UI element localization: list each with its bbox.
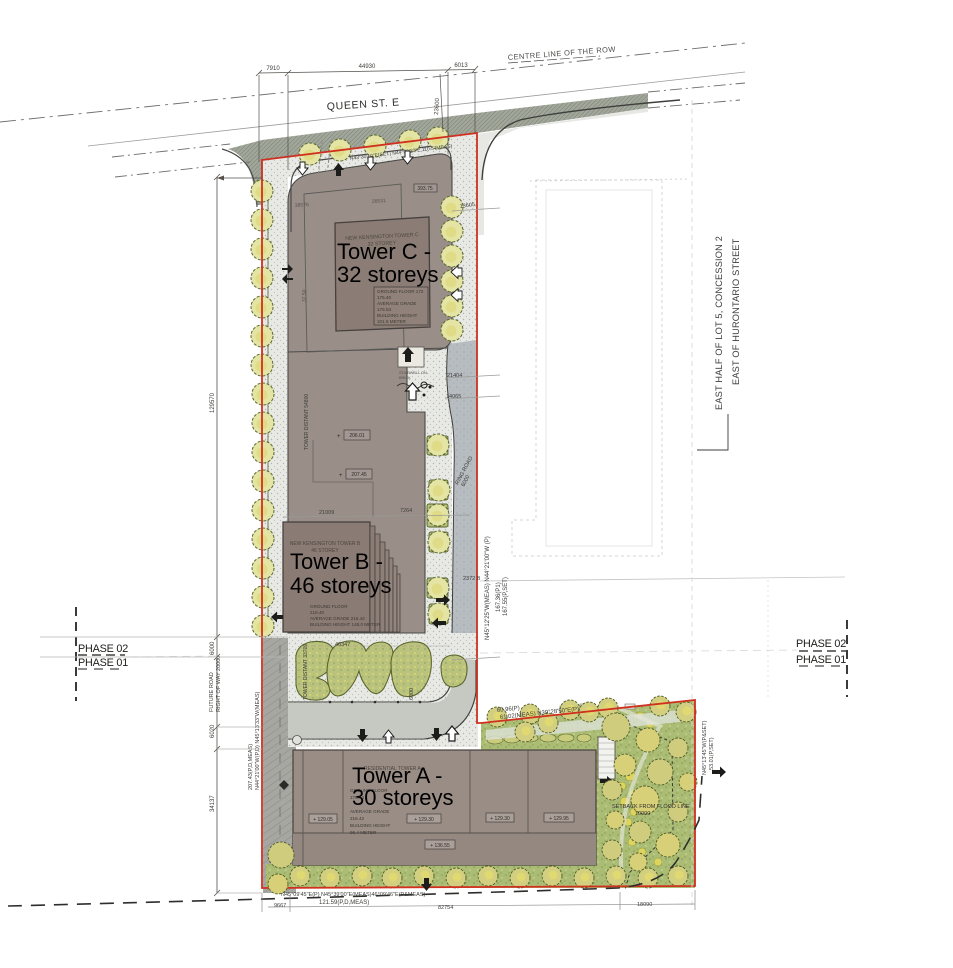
svg-text:Tower B -: Tower B - (290, 549, 383, 574)
svg-text:101.6 METER: 101.6 METER (377, 319, 407, 324)
svg-text:167.36(P1): 167.36(P1) (496, 582, 502, 612)
svg-text:+: + (337, 434, 341, 440)
svg-text:10000: 10000 (635, 811, 650, 817)
svg-text:18090: 18090 (637, 902, 652, 908)
svg-text:121.59(P,D,MEAS): 121.59(P,D,MEAS) (319, 900, 369, 906)
svg-text:175.40: 175.40 (377, 295, 391, 300)
svg-text:216.40: 216.40 (310, 610, 324, 615)
svg-text:207.45: 207.45 (351, 472, 367, 478)
svg-text:6020: 6020 (210, 724, 216, 738)
svg-text:40347: 40347 (335, 642, 350, 648)
svg-text:32 storeys: 32 storeys (337, 262, 439, 287)
svg-text:N45°12'25"W(MEAS) N44°21'00"W: N45°12'25"W(MEAS) N44°21'00"W (P) (485, 536, 491, 640)
svg-text:GROUND FLOOR: GROUND FLOOR (310, 604, 348, 609)
svg-text:BUILDING HEIGHT 148.0 METER: BUILDING HEIGHT 148.0 METER (310, 622, 381, 627)
svg-text:34137: 34137 (210, 795, 216, 812)
svg-text:AVERAGE GRADE: AVERAGE GRADE (377, 301, 416, 306)
svg-text:N45°13'45"W(P&SET): N45°13'45"W(P&SET) (702, 720, 708, 775)
svg-text:44930: 44930 (359, 64, 376, 70)
svg-text:TOWER DISTANT 54800: TOWER DISTANT 54800 (304, 394, 310, 450)
svg-text:NEW KENSINGTON TOWER B: NEW KENSINGTON TOWER B (290, 541, 361, 547)
svg-text:206.01: 206.01 (349, 433, 365, 439)
svg-text:AVERAGE GRADE 216.42: AVERAGE GRADE 216.42 (310, 616, 365, 621)
svg-text:9667: 9667 (274, 903, 286, 909)
svg-text:167.55(P,SET): 167.55(P,SET) (503, 577, 509, 616)
svg-text:96.4 METER: 96.4 METER (350, 830, 377, 835)
svg-text:BUILDING HEIGHT: BUILDING HEIGHT (350, 823, 391, 828)
svg-text:176.53: 176.53 (377, 307, 391, 312)
svg-text:N45°09'45"E(P) N45°39'00"E(MEA: N45°09'45"E(P) N45°39'00"E(MEAS)46°09'46… (281, 892, 425, 898)
svg-text:+ 136.55: + 136.55 (430, 843, 450, 849)
svg-text:TOWER DISTANT 33709: TOWER DISTANT 33709 (303, 644, 309, 700)
svg-text:GROUND FLOOR 172: GROUND FLOOR 172 (377, 289, 424, 294)
svg-text:EAST HALF OF LOT 5, CONCESSION: EAST HALF OF LOT 5, CONCESSION 2 (714, 236, 724, 410)
svg-text:53.01(P,SET): 53.01(P,SET) (709, 737, 715, 770)
svg-text:STAIRWELL ON: STAIRWELL ON (399, 371, 427, 375)
svg-text:46 storeys: 46 storeys (290, 573, 392, 598)
svg-text:+: + (339, 473, 343, 479)
svg-text:21009: 21009 (319, 510, 334, 516)
svg-text:7910: 7910 (266, 66, 280, 72)
svg-text:EAST OF HURONTARIO STREET: EAST OF HURONTARIO STREET (731, 238, 741, 385)
svg-text:129570: 129570 (210, 392, 216, 413)
svg-text:23600: 23600 (434, 97, 441, 115)
svg-text:RIGHT OF WAY 20000: RIGHT OF WAY 20000 (216, 656, 222, 712)
svg-text:38576: 38576 (295, 202, 310, 209)
svg-text:PHASE 02: PHASE 02 (796, 638, 846, 650)
svg-text:30 storeys: 30 storeys (352, 785, 454, 810)
svg-text:2372 B: 2372 B (463, 576, 481, 582)
svg-text:Tower C -: Tower C - (337, 239, 431, 264)
svg-text:+ 129.95: + 129.95 (549, 816, 569, 822)
svg-text:+ 129.30: + 129.30 (414, 817, 434, 823)
svg-text:207.43(P,D,MEAS): 207.43(P,D,MEAS) (248, 744, 254, 790)
svg-text:+ 129.05: + 129.05 (313, 817, 333, 823)
svg-text:+ 129.30: + 129.30 (490, 816, 510, 822)
svg-text:PHASE 01: PHASE 01 (796, 654, 846, 666)
svg-text:FUTURE ROAD: FUTURE ROAD (209, 672, 215, 712)
svg-text:82754: 82754 (438, 905, 453, 911)
svg-text:BUILDING HEIGHT: BUILDING HEIGHT (377, 313, 418, 318)
svg-text:PHASE 01: PHASE 01 (78, 657, 128, 669)
svg-text:7264: 7264 (400, 508, 412, 514)
svg-text:SETBACK FROM FLOOD LINE: SETBACK FROM FLOOD LINE (612, 804, 690, 810)
svg-text:PHASE 02: PHASE 02 (78, 643, 128, 655)
svg-text:6000: 6000 (409, 688, 415, 700)
svg-text:6000: 6000 (210, 641, 216, 655)
svg-text:BRICK: BRICK (399, 376, 411, 380)
svg-text:393.75: 393.75 (417, 186, 433, 192)
svg-text:N44°21'00"W(P,D) N45°13'33"W(: N44°21'00"W(P,D) N45°13'33"W(MEAS) (255, 691, 261, 790)
svg-text:26531: 26531 (372, 198, 387, 205)
svg-text:216.42: 216.42 (350, 816, 364, 821)
svg-text:37.50: 37.50 (302, 289, 308, 302)
svg-text:6013: 6013 (454, 63, 468, 69)
